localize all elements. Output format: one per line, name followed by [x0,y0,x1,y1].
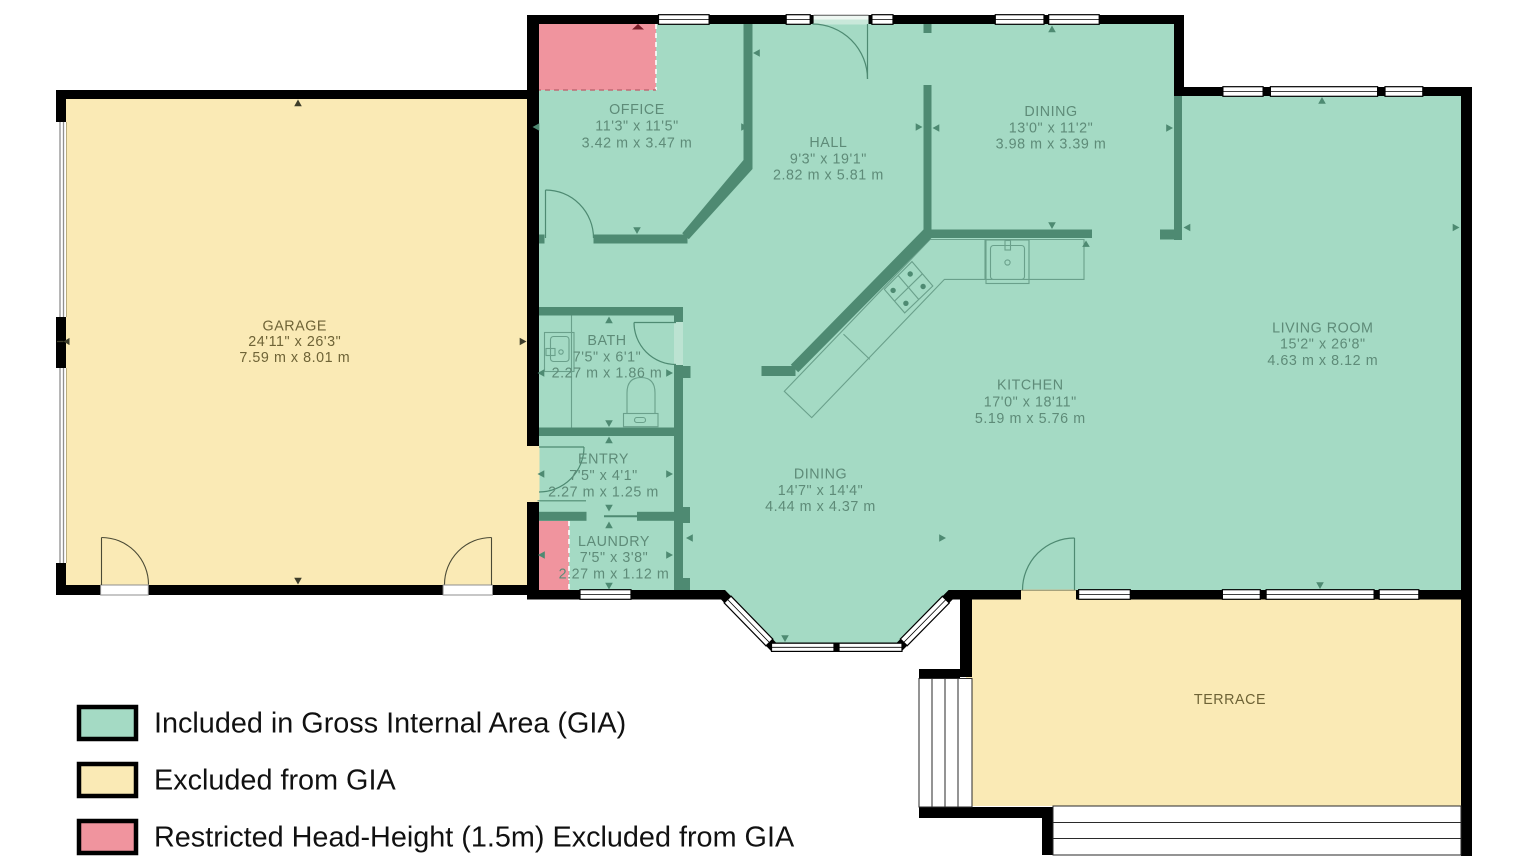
svg-text:2.82 m x 5.81 m: 2.82 m x 5.81 m [773,168,884,184]
svg-text:ENTRY: ENTRY [578,452,629,468]
svg-text:4.63 m x 8.12 m: 4.63 m x 8.12 m [1267,353,1378,369]
svg-text:14'7" x 14'4": 14'7" x 14'4" [778,483,864,499]
svg-text:LIVING ROOM: LIVING ROOM [1272,320,1373,336]
svg-text:7'5" x 6'1": 7'5" x 6'1" [573,349,642,365]
svg-text:7.59 m x 8.01 m: 7.59 m x 8.01 m [239,350,350,366]
svg-text:17'0" x 18'11": 17'0" x 18'11" [984,394,1077,410]
svg-text:Excluded from GIA: Excluded from GIA [154,765,396,797]
svg-text:24'11" x 26'3": 24'11" x 26'3" [248,334,341,350]
svg-text:7'5" x 4'1": 7'5" x 4'1" [569,468,638,484]
svg-text:11'3" x 11'5": 11'3" x 11'5" [595,119,678,135]
svg-text:3.98 m x 3.39 m: 3.98 m x 3.39 m [996,137,1107,153]
svg-text:2.27 m x 1.25 m: 2.27 m x 1.25 m [548,484,659,500]
svg-text:4.44 m x 4.37 m: 4.44 m x 4.37 m [765,499,876,515]
svg-text:13'0" x 11'2": 13'0" x 11'2" [1009,120,1094,136]
svg-text:2.27 m x 1.12 m: 2.27 m x 1.12 m [559,566,670,582]
svg-text:Included in Gross Internal Are: Included in Gross Internal Area (GIA) [154,708,626,740]
svg-text:DINING: DINING [1024,104,1077,120]
svg-text:9'3" x 19'1": 9'3" x 19'1" [790,151,867,167]
svg-text:GARAGE: GARAGE [263,318,327,334]
svg-text:TERRACE: TERRACE [1194,692,1266,708]
svg-text:3.42 m x 3.47 m: 3.42 m x 3.47 m [582,135,693,151]
svg-text:15'2" x 26'8": 15'2" x 26'8" [1280,337,1366,353]
svg-text:BATH: BATH [587,333,626,349]
svg-text:DINING: DINING [794,467,847,483]
svg-text:HALL: HALL [809,135,847,151]
svg-text:5.19 m x 5.76 m: 5.19 m x 5.76 m [975,411,1086,427]
svg-text:OFFICE: OFFICE [609,102,665,118]
svg-text:2.27 m x 1.86 m: 2.27 m x 1.86 m [552,366,663,382]
svg-text:Restricted Head-Height (1.5m): Restricted Head-Height (1.5m) Excluded f… [154,822,795,854]
svg-text:7'5" x 3'8": 7'5" x 3'8" [580,550,649,566]
svg-text:LAUNDRY: LAUNDRY [578,534,650,550]
svg-text:KITCHEN: KITCHEN [997,378,1064,394]
